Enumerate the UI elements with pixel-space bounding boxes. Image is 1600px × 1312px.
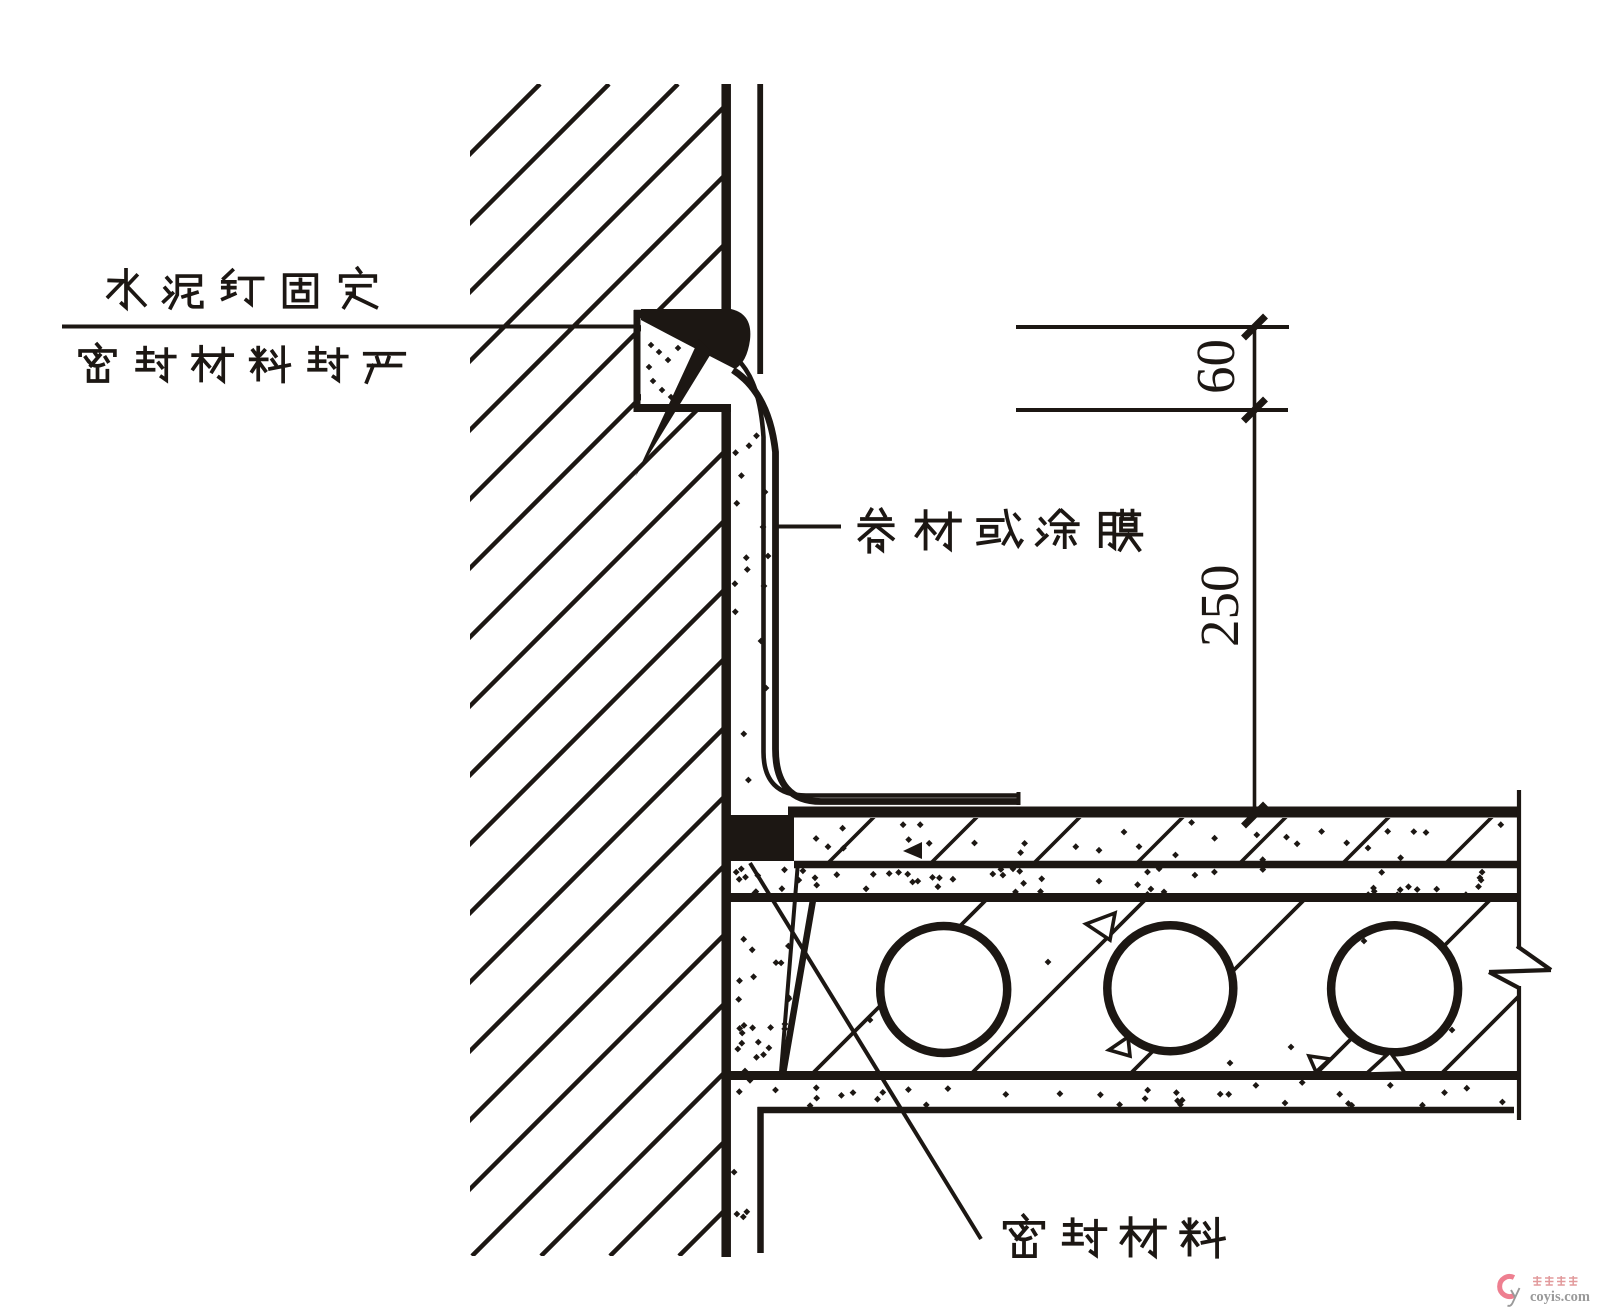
svg-text:250: 250 bbox=[1189, 565, 1250, 648]
svg-text:60: 60 bbox=[1185, 339, 1246, 394]
svg-text:coyis.com: coyis.com bbox=[1530, 1289, 1590, 1305]
